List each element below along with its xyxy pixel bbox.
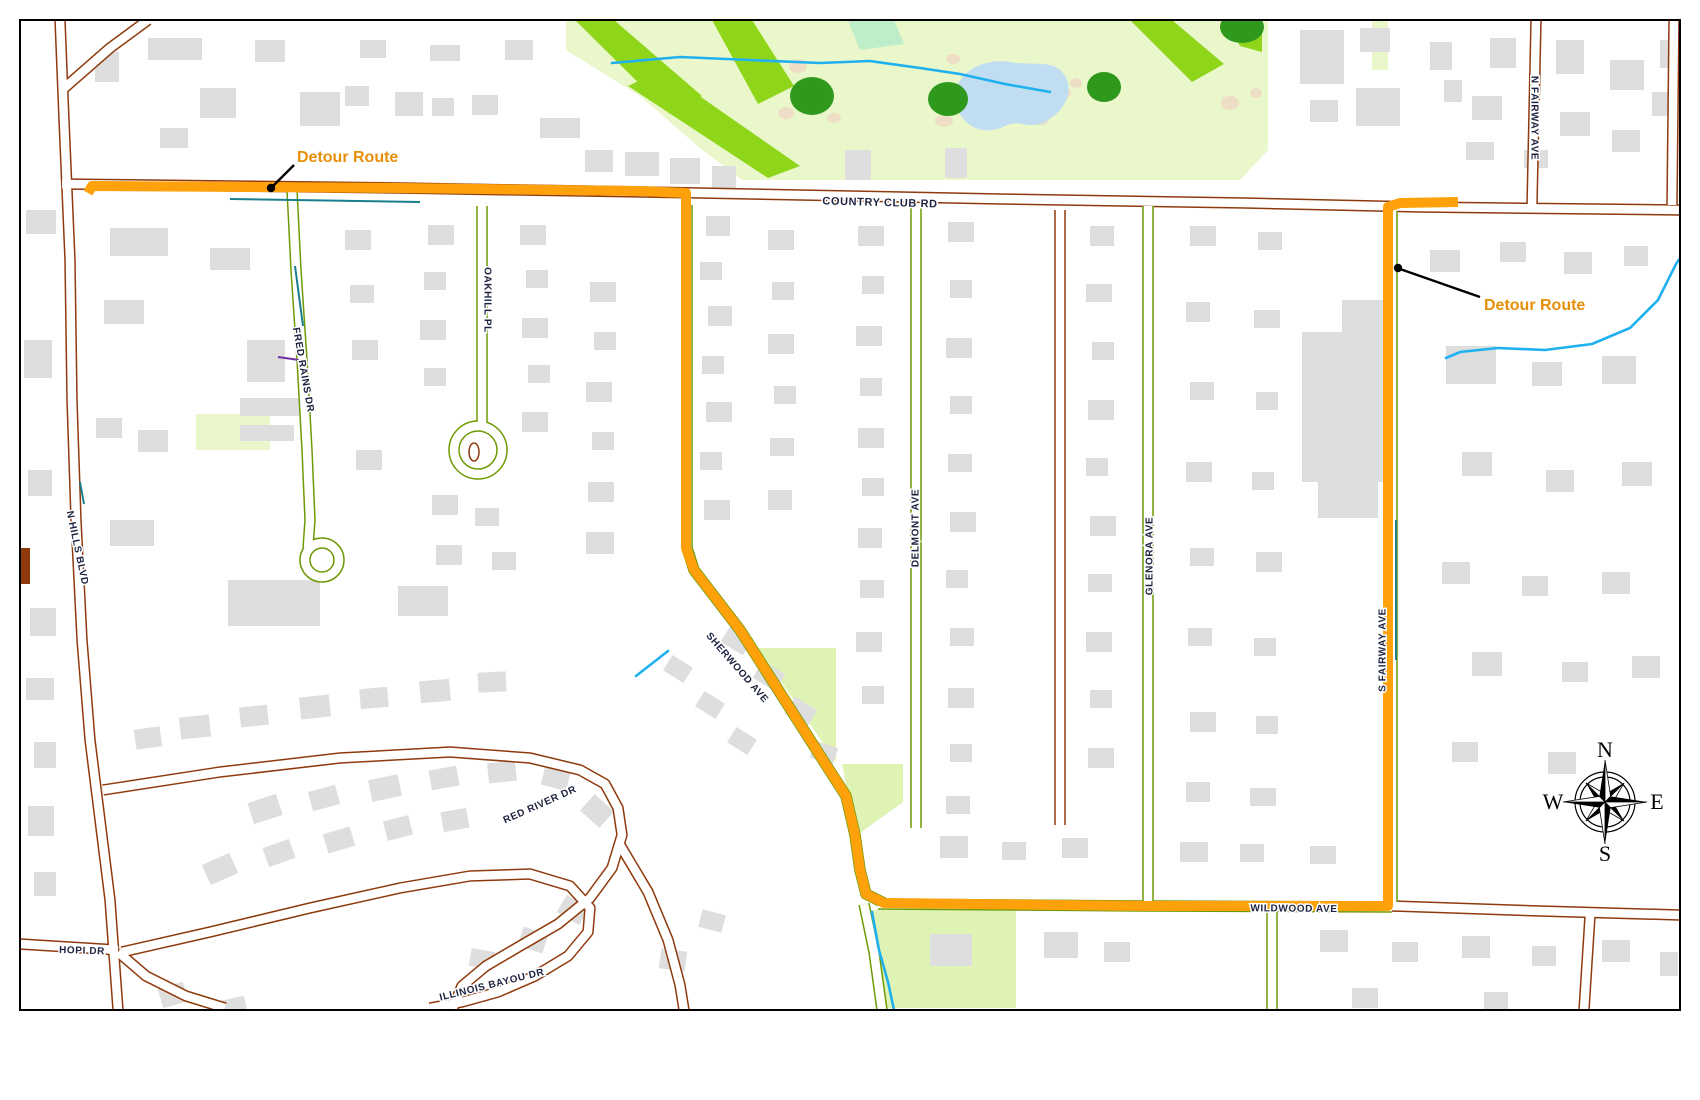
- building: [772, 282, 794, 300]
- sand-bunker: [1221, 96, 1239, 110]
- building: [1090, 516, 1116, 536]
- building: [945, 148, 967, 178]
- building: [160, 128, 188, 148]
- building: [26, 210, 56, 234]
- building: [228, 580, 320, 626]
- building: [1090, 690, 1112, 708]
- building: [239, 705, 269, 728]
- building: [1622, 462, 1652, 486]
- building: [862, 686, 884, 704]
- building: [950, 280, 972, 298]
- building: [770, 438, 794, 456]
- building: [487, 761, 517, 784]
- building: [704, 500, 730, 520]
- building: [1318, 482, 1378, 518]
- building: [1392, 942, 1418, 962]
- building: [946, 570, 968, 588]
- building: [702, 356, 724, 374]
- building: [845, 150, 871, 180]
- building: [706, 216, 730, 236]
- building: [138, 430, 168, 452]
- building: [1190, 226, 1216, 246]
- detour-route-label: Detour Route: [1484, 297, 1585, 314]
- building: [432, 495, 458, 515]
- building: [323, 826, 356, 853]
- street-label-s-fairway-ave: S FAIRWAY AVE: [1378, 608, 1389, 692]
- major-road: [620, 845, 684, 1010]
- building: [1256, 392, 1278, 410]
- building: [1444, 80, 1462, 102]
- building: [352, 340, 378, 360]
- building: [492, 552, 516, 570]
- building: [1086, 284, 1112, 302]
- building: [930, 934, 972, 966]
- building: [368, 774, 402, 802]
- street-label-country-club-rd: COUNTRY CLUB RD: [822, 195, 938, 210]
- detour-route-label: Detour Route: [297, 149, 398, 166]
- building: [860, 378, 882, 396]
- building: [24, 340, 52, 378]
- building: [858, 528, 882, 548]
- building: [1092, 342, 1114, 360]
- building: [950, 628, 974, 646]
- building: [1190, 382, 1214, 400]
- building: [950, 396, 972, 414]
- compass-letter-w: W: [1543, 789, 1564, 814]
- tree-canopy: [1087, 72, 1121, 102]
- building: [1310, 846, 1336, 864]
- street-label-n-fairway-ave: N FAIRWAY AVE: [1528, 76, 1539, 160]
- building: [428, 225, 454, 245]
- building: [1186, 782, 1210, 802]
- street-label-oakhill-pl: OAKHILL PL: [481, 267, 492, 333]
- building: [1556, 40, 1584, 74]
- building: [1090, 226, 1114, 246]
- stream: [636, 651, 668, 676]
- building: [350, 285, 374, 303]
- compass-point: [1599, 802, 1605, 844]
- building: [1360, 28, 1390, 52]
- building: [1186, 462, 1212, 482]
- major-road: [1672, 20, 1674, 205]
- building: [1086, 458, 1108, 476]
- compass-letter-s: S: [1599, 841, 1611, 866]
- building: [1240, 844, 1264, 862]
- building: [255, 40, 285, 62]
- building: [110, 520, 154, 546]
- street-label-red-river-dr: RED RIVER DR: [502, 784, 579, 826]
- building: [240, 425, 294, 441]
- building: [1472, 96, 1502, 120]
- building: [472, 95, 498, 115]
- building: [345, 86, 369, 106]
- building: [1562, 662, 1588, 682]
- building: [1342, 300, 1384, 332]
- building: [1610, 60, 1644, 90]
- building: [948, 688, 974, 708]
- building: [1044, 932, 1078, 958]
- building: [862, 276, 884, 294]
- tree-canopy: [790, 77, 834, 115]
- building: [1462, 936, 1490, 958]
- stream: [1446, 232, 1698, 358]
- building: [1602, 940, 1630, 962]
- street-label-glenora-ave: GLENORA AVE: [1145, 517, 1156, 595]
- building: [592, 432, 614, 450]
- building: [1254, 638, 1276, 656]
- tree-canopy: [928, 82, 968, 116]
- building: [588, 482, 614, 502]
- building: [1442, 562, 1470, 584]
- buildings-layer: [24, 28, 1678, 1018]
- building: [940, 836, 968, 858]
- building: [398, 586, 448, 616]
- building: [359, 687, 389, 709]
- building: [360, 40, 386, 58]
- building: [856, 326, 882, 346]
- building: [1250, 788, 1276, 806]
- building: [1532, 362, 1562, 386]
- building: [526, 270, 548, 288]
- compass-letter-e: E: [1650, 789, 1663, 814]
- building: [774, 386, 796, 404]
- building: [210, 248, 250, 270]
- building: [1602, 572, 1630, 594]
- compass-point: [1563, 796, 1605, 802]
- building: [862, 478, 884, 496]
- sand-bunker: [827, 113, 841, 123]
- building: [432, 98, 454, 116]
- sand-bunker: [946, 54, 960, 64]
- sand-bunker: [1070, 78, 1082, 88]
- building: [1612, 130, 1640, 152]
- building: [1088, 400, 1114, 420]
- building: [383, 815, 413, 841]
- building: [670, 158, 700, 184]
- sand-bunker: [778, 107, 794, 119]
- building: [1190, 548, 1214, 566]
- compass-point: [1563, 802, 1605, 808]
- building: [1462, 452, 1492, 476]
- building: [1356, 88, 1400, 126]
- building: [1062, 838, 1088, 858]
- building: [179, 714, 211, 739]
- building: [1532, 946, 1556, 966]
- edge-road-mark: [20, 548, 30, 584]
- building: [34, 872, 56, 896]
- building: [1660, 952, 1678, 976]
- building: [1546, 470, 1574, 492]
- building: [586, 382, 612, 402]
- building: [1256, 552, 1282, 572]
- building: [428, 766, 459, 791]
- building: [695, 691, 725, 719]
- sand-bunker: [935, 115, 953, 127]
- building: [520, 225, 546, 245]
- building: [1500, 242, 1526, 262]
- building: [134, 726, 163, 749]
- building: [110, 228, 168, 256]
- building: [200, 88, 236, 118]
- building: [440, 808, 469, 832]
- building: [30, 608, 56, 636]
- building: [1252, 472, 1274, 490]
- building: [522, 412, 548, 432]
- compass-point: [1605, 802, 1611, 844]
- building: [594, 332, 616, 350]
- building: [946, 338, 972, 358]
- building: [1522, 576, 1548, 596]
- building: [26, 678, 54, 700]
- building: [247, 340, 285, 382]
- building: [1430, 42, 1452, 70]
- building: [1104, 942, 1130, 962]
- building: [104, 300, 144, 324]
- street-label-wildwood-ave: WILDWOOD AVE: [1250, 903, 1337, 915]
- major-road: [1392, 906, 1680, 915]
- building: [356, 450, 382, 470]
- building: [1560, 112, 1590, 136]
- building: [148, 38, 202, 60]
- building: [950, 744, 972, 762]
- building: [240, 398, 302, 416]
- detour-arrow-dot: [267, 184, 275, 192]
- building: [1624, 246, 1648, 266]
- building: [706, 402, 732, 422]
- building: [948, 222, 974, 242]
- compass-letter-n: N: [1597, 737, 1613, 762]
- building: [1086, 632, 1112, 652]
- building: [708, 306, 732, 326]
- building: [698, 909, 726, 933]
- building: [590, 282, 616, 302]
- building: [858, 226, 884, 246]
- building: [858, 428, 884, 448]
- building: [34, 742, 56, 768]
- building: [586, 532, 614, 554]
- building: [1088, 748, 1114, 768]
- building: [768, 230, 794, 250]
- building: [202, 853, 238, 885]
- golf-course-layer: [566, 11, 1388, 180]
- building: [96, 418, 122, 438]
- cul-de-sac-island: [469, 443, 479, 461]
- major-road: [1584, 916, 1590, 1010]
- building: [1472, 652, 1502, 676]
- building: [727, 727, 757, 755]
- building: [625, 152, 659, 176]
- building: [528, 365, 550, 383]
- building: [1188, 628, 1212, 646]
- building: [1564, 252, 1592, 274]
- building: [856, 632, 882, 652]
- detour-arrow-dot: [1394, 264, 1402, 272]
- compass-point: [1599, 760, 1605, 802]
- building: [430, 45, 460, 61]
- building: [247, 794, 282, 824]
- building: [768, 490, 792, 510]
- building: [585, 150, 613, 172]
- building: [1320, 930, 1348, 952]
- compass-point: [1605, 802, 1647, 808]
- detour-arrow: [1400, 269, 1480, 297]
- building: [1002, 842, 1026, 860]
- building: [700, 452, 722, 470]
- building: [860, 580, 884, 598]
- sand-bunker: [1250, 88, 1262, 98]
- detour-map-page: COUNTRY CLUB RDN FAIRWAY AVES FAIRWAY AV…: [0, 0, 1700, 1100]
- building: [1602, 356, 1636, 384]
- building: [419, 679, 451, 704]
- building: [299, 694, 331, 719]
- building: [1484, 992, 1508, 1010]
- compass-point: [1605, 796, 1647, 802]
- building: [1548, 752, 1576, 774]
- building: [1632, 656, 1660, 678]
- building: [424, 368, 446, 386]
- building: [28, 806, 54, 836]
- building: [1452, 742, 1478, 762]
- building: [1310, 100, 1338, 122]
- street-labels-layer: COUNTRY CLUB RDN FAIRWAY AVES FAIRWAY AV…: [59, 76, 1539, 1004]
- building: [395, 92, 423, 116]
- drainage-line: [230, 199, 420, 202]
- building: [540, 118, 580, 138]
- building: [436, 545, 462, 565]
- building: [950, 512, 976, 532]
- building: [700, 262, 722, 280]
- building: [946, 796, 970, 814]
- building: [300, 92, 340, 126]
- building: [1186, 302, 1210, 322]
- building: [424, 272, 446, 290]
- building: [1300, 30, 1344, 84]
- building: [1352, 988, 1378, 1008]
- building: [1302, 332, 1388, 482]
- building: [475, 508, 499, 526]
- building: [505, 40, 533, 60]
- building: [768, 334, 794, 354]
- building: [712, 166, 736, 190]
- detour-map: COUNTRY CLUB RDN FAIRWAY AVES FAIRWAY AV…: [0, 0, 1700, 1100]
- street-label-delmont-ave: DELMONT AVE: [911, 489, 922, 567]
- building: [345, 230, 371, 250]
- building: [1088, 574, 1112, 592]
- building: [420, 320, 446, 340]
- building: [1256, 716, 1278, 734]
- building: [1254, 310, 1280, 328]
- street-label-hopi-dr: HOPI DR: [59, 945, 105, 958]
- building: [1190, 712, 1216, 732]
- building: [1466, 142, 1494, 160]
- building: [308, 785, 340, 812]
- tree-canopy: [1220, 11, 1264, 43]
- building: [262, 839, 295, 867]
- building: [28, 470, 52, 496]
- building: [1490, 38, 1516, 68]
- building: [1258, 232, 1282, 250]
- compass-point: [1605, 760, 1611, 802]
- building: [663, 655, 693, 683]
- building: [1180, 842, 1208, 862]
- building: [948, 454, 972, 472]
- building: [522, 318, 548, 338]
- building: [1430, 250, 1460, 272]
- building: [477, 671, 506, 692]
